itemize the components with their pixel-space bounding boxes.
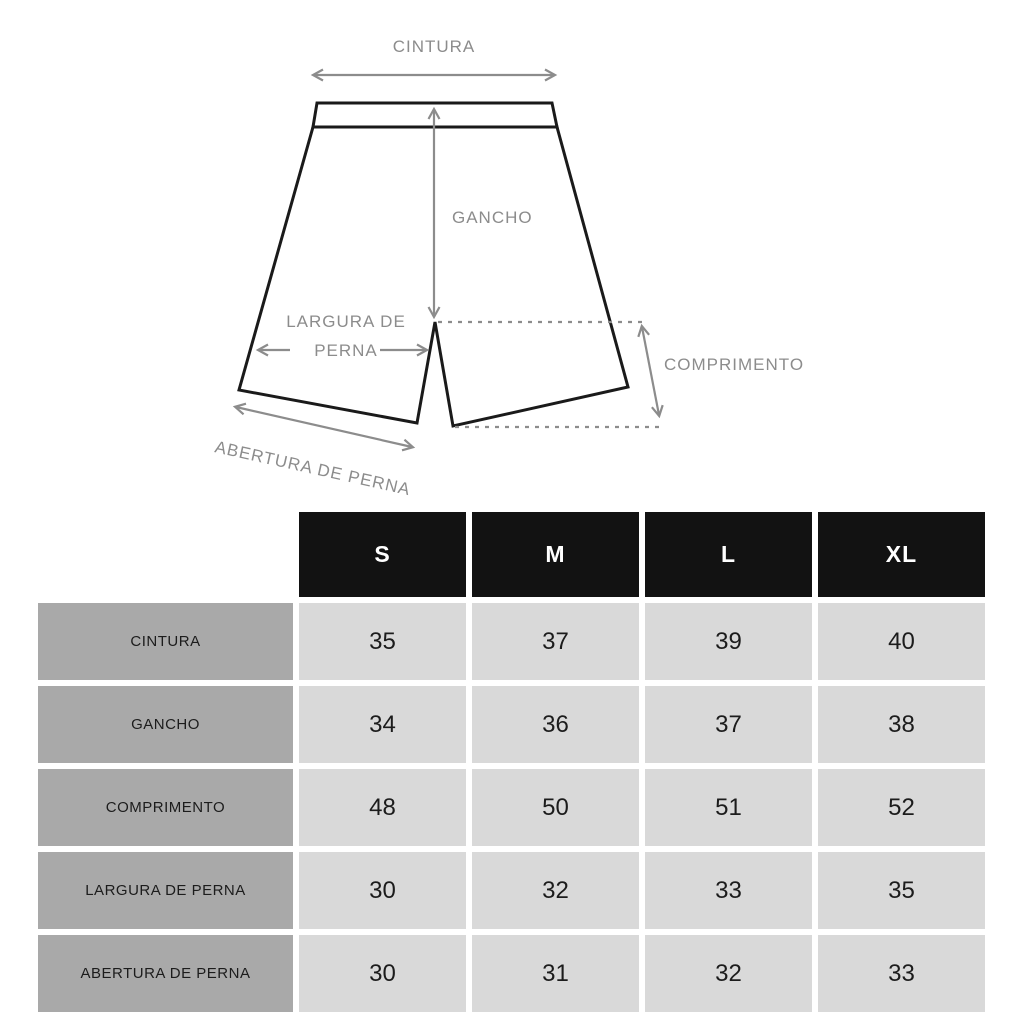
rise-label: GANCHO	[452, 208, 533, 227]
value-abertura-xl: 33	[818, 935, 985, 1012]
value-gancho-m: 36	[472, 686, 639, 763]
value-comprimento-m: 50	[472, 769, 639, 846]
value-comprimento-l: 51	[645, 769, 812, 846]
leg-width-label-line1: LARGURA DE	[286, 312, 406, 331]
row-label-comprimento: COMPRIMENTO	[38, 769, 293, 846]
value-cintura-m: 37	[472, 603, 639, 680]
value-largura-xl: 35	[818, 852, 985, 929]
value-cintura-l: 39	[645, 603, 812, 680]
size-column-header-s: S	[299, 512, 466, 597]
row-label-gancho: GANCHO	[38, 686, 293, 763]
row-label-largura-de-perna: LARGURA DE PERNA	[38, 852, 293, 929]
value-cintura-s: 35	[299, 603, 466, 680]
size-column-header-m: M	[472, 512, 639, 597]
size-chart-table: S M L XL CINTURA 35 37 39 40 GANCHO 34 3…	[38, 512, 985, 1012]
table-corner-spacer	[38, 512, 293, 597]
value-gancho-l: 37	[645, 686, 812, 763]
waist-label: CINTURA	[393, 37, 476, 56]
leg-opening-label: ABERTURA DE PERNA	[213, 437, 412, 499]
leg-width-label-line2: PERNA	[314, 341, 378, 360]
value-abertura-s: 30	[299, 935, 466, 1012]
value-gancho-xl: 38	[818, 686, 985, 763]
value-abertura-m: 31	[472, 935, 639, 1012]
length-arrow	[642, 327, 659, 415]
value-cintura-xl: 40	[818, 603, 985, 680]
row-label-cintura: CINTURA	[38, 603, 293, 680]
value-abertura-l: 32	[645, 935, 812, 1012]
row-label-abertura-de-perna: ABERTURA DE PERNA	[38, 935, 293, 1012]
shorts-diagram-svg: CINTURA GANCHO LARGURA DE PERNA COMPRIME…	[0, 0, 1024, 505]
value-comprimento-s: 48	[299, 769, 466, 846]
shorts-measurement-diagram: CINTURA GANCHO LARGURA DE PERNA COMPRIME…	[0, 0, 1024, 510]
value-gancho-s: 34	[299, 686, 466, 763]
value-largura-m: 32	[472, 852, 639, 929]
size-column-header-l: L	[645, 512, 812, 597]
value-largura-s: 30	[299, 852, 466, 929]
value-largura-l: 33	[645, 852, 812, 929]
value-comprimento-xl: 52	[818, 769, 985, 846]
length-label: COMPRIMENTO	[664, 355, 804, 374]
size-column-header-xl: XL	[818, 512, 985, 597]
